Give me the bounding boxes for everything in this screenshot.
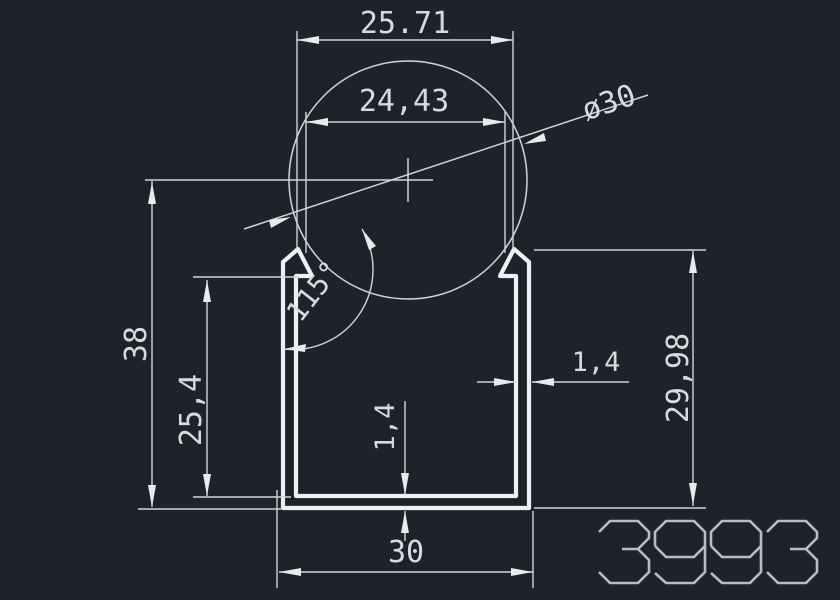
part-number-digit (711, 521, 761, 583)
arrow (297, 36, 319, 44)
dimension-wall-thickness: 1,4 (477, 347, 629, 386)
arrow (401, 511, 409, 533)
part-number-digit (767, 521, 817, 583)
drawing-svg: ø30 25.71 24,43 38 25,4 (0, 0, 840, 600)
arrow (483, 118, 505, 126)
bottom-width-label: 30 (388, 535, 424, 570)
arrow (203, 474, 211, 496)
diameter-arrow-left (269, 217, 291, 228)
dimension-top-inner-width: 24,43 (306, 84, 505, 253)
arrow (148, 485, 156, 507)
dimension-bottom-thickness: 1,4 (370, 401, 409, 541)
part-number (599, 521, 817, 583)
dimension-top-outer-width: 25.71 (297, 6, 513, 249)
reference-circle (145, 61, 527, 299)
arrow (279, 568, 301, 576)
top-inner-width-label: 24,43 (359, 84, 449, 119)
right-height-label: 29,98 (661, 333, 696, 423)
arrow (689, 483, 697, 505)
lip-angle-label: 115° (280, 254, 348, 327)
arrow (203, 280, 211, 302)
dimension-overall-height: 38 (119, 181, 281, 509)
overall-height-label: 38 (119, 326, 154, 362)
arrow (401, 473, 409, 495)
wall-thickness-label: 1,4 (572, 347, 621, 378)
arrow (148, 182, 156, 204)
part-number-digit (655, 521, 705, 583)
dimension-right-height: 29,98 (534, 250, 706, 508)
diameter-label: ø30 (578, 78, 640, 128)
part-number-digit (599, 521, 649, 583)
arrow (362, 229, 376, 250)
dimension-bottom-width: 30 (277, 490, 533, 588)
arrow (689, 251, 697, 273)
arrow (511, 568, 533, 576)
arrow (532, 378, 554, 386)
arrow (306, 118, 328, 126)
top-outer-width-label: 25.71 (360, 6, 450, 41)
arrow (491, 36, 513, 44)
bottom-thickness-label: 1,4 (370, 403, 401, 452)
arrow (494, 378, 516, 386)
dimension-inner-height: 25,4 (174, 277, 299, 497)
cad-drawing-canvas: ø30 25.71 24,43 38 25,4 (0, 0, 840, 600)
inner-height-label: 25,4 (174, 374, 209, 446)
